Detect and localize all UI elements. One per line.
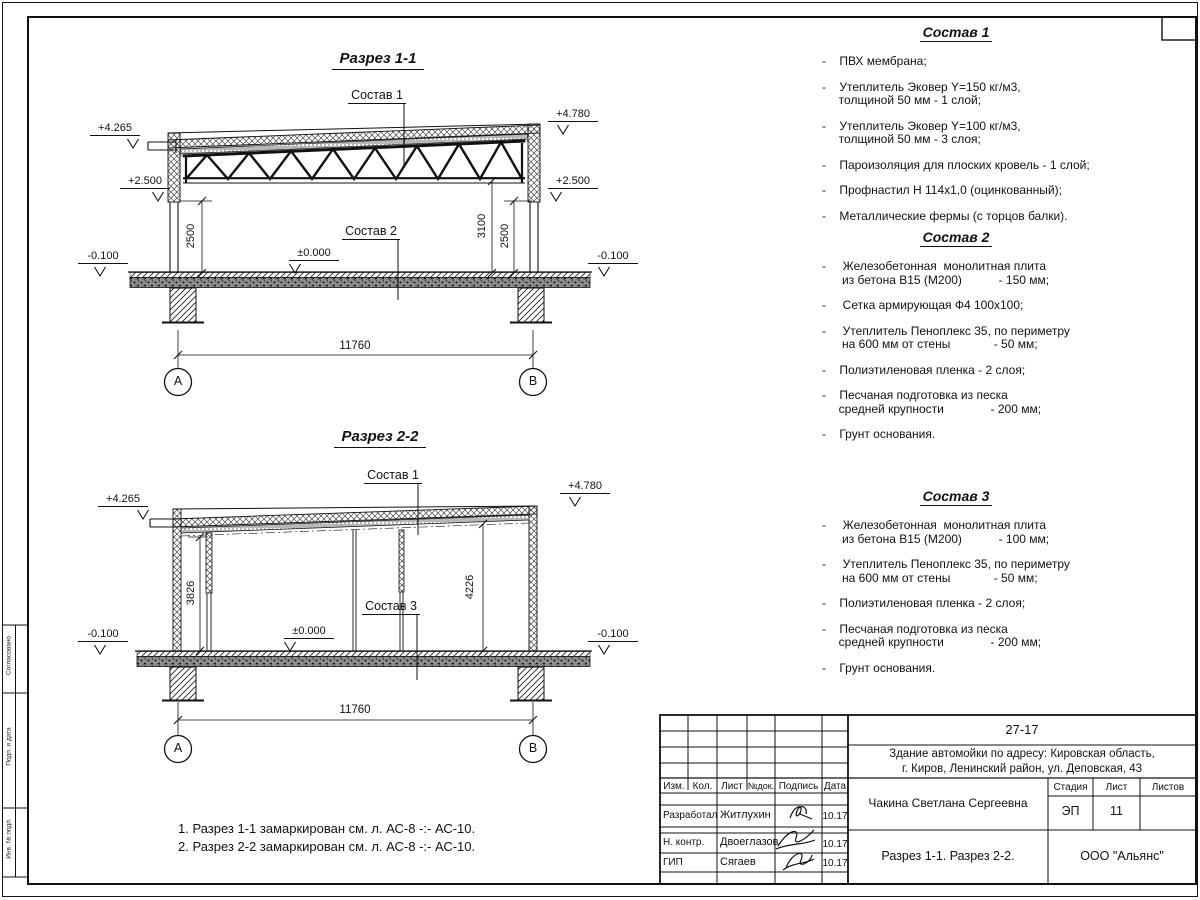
composition-list-1: Состав 1 - ПВХ мембрана; - Утеплитель Эк… (822, 24, 1162, 235)
composition-item: - Железобетонная монолитная плита из бет… (822, 260, 1162, 287)
dimension-label: 11760 (315, 704, 395, 716)
elevation-mark: +4.780 (548, 108, 598, 122)
dimension-label: 2500 (499, 204, 511, 268)
composition-item: - Грунт основания. (822, 662, 1162, 676)
elevation-mark: +2.500 (548, 175, 598, 189)
sheet-label: Лист (1093, 782, 1140, 793)
composition-item: - Полиэтиленовая пленка - 2 слоя; (822, 364, 1162, 378)
section1-callout-roof: Состав 1 (348, 88, 406, 104)
elevation-mark: +4.780 (560, 480, 610, 494)
composition-item: - Сетка армирующая Ф4 100х100; (822, 299, 1162, 313)
composition-3-title: Состав 3 (920, 488, 993, 506)
sign-date: 10.17 (822, 811, 848, 822)
axis-letter-a: А (169, 374, 187, 388)
section2-callout-floor: Состав 3 (362, 599, 420, 615)
composition-item: - Металлические фермы (с торцов балки). (822, 210, 1162, 224)
sheets-label: Листов (1140, 782, 1196, 793)
col-header-podpis: Подпись (775, 781, 822, 792)
project-description: Здание автомойки по адресу: Кировская об… (848, 747, 1196, 776)
composition-list-2: Состав 2 - Железобетонная монолитная пли… (822, 229, 1162, 454)
person-name: Житлухин (720, 809, 771, 821)
elevation-mark: -0.100 (78, 250, 128, 264)
stage-label: Стадия (1048, 782, 1093, 793)
role-label: Н. контр. (663, 837, 704, 848)
elevation-mark: +4.265 (98, 493, 148, 507)
composition-item: - Утеплитель Пеноплекс 35, по периметру … (822, 325, 1162, 352)
elevation-mark: ±0.000 (289, 247, 339, 261)
composition-item: - Полиэтиленовая пленка - 2 слоя; (822, 597, 1162, 611)
role-label: ГИП (663, 857, 683, 868)
composition-item: - ПВХ мембрана; (822, 55, 1162, 69)
composition-item: - Профнастил Н 114х1,0 (оцинкованный); (822, 184, 1162, 198)
composition-list-3: Состав 3 - Железобетонная монолитная пли… (822, 488, 1162, 687)
elevation-mark: -0.100 (588, 250, 638, 264)
composition-item: - Песчаная подготовка из песка средней к… (822, 389, 1162, 416)
elevation-mark: -0.100 (78, 628, 128, 642)
composition-1-title: Состав 1 (920, 24, 993, 42)
composition-item: - Утеплитель Эковер Y=100 кг/м3, толщино… (822, 120, 1162, 147)
section-2-title: Разрез 2-2 (334, 428, 426, 448)
dimension-label: 3826 (185, 561, 197, 625)
elevation-mark: +2.500 (120, 175, 170, 189)
col-header-data: Дата (822, 781, 848, 792)
composition-item: - Железобетонная монолитная плита из бет… (822, 519, 1162, 546)
col-header-izm: Изм. (660, 781, 688, 792)
composition-item: - Песчаная подготовка из песка средней к… (822, 623, 1162, 650)
margin-label: Подп. и дата (6, 707, 13, 787)
sign-date: 10.17 (822, 839, 848, 850)
author-name: Чакина Светлана Сергеевна (848, 796, 1048, 810)
composition-2-title: Состав 2 (920, 229, 993, 247)
dimension-label: 4226 (464, 555, 476, 619)
elevation-mark: -0.100 (588, 628, 638, 642)
person-name: Сягаев (720, 856, 756, 868)
stage-value: ЭП (1048, 804, 1093, 818)
composition-item: - Утеплитель Эковер Y=150 кг/м3, толщино… (822, 81, 1162, 108)
company-name: ООО "Альянс" (1048, 849, 1196, 863)
section1-callout-floor: Состав 2 (342, 224, 400, 240)
composition-item: - Пароизоляция для плоских кровель - 1 с… (822, 159, 1162, 173)
sign-date: 10.17 (822, 858, 848, 869)
section2-callout-roof: Состав 1 (364, 468, 422, 484)
section-2-2-drawing (95, 484, 610, 763)
dimension-label: 11760 (315, 340, 395, 352)
dimension-label: 2500 (185, 204, 197, 268)
margin-label: Согласовано (6, 616, 13, 696)
elevation-mark: +4.265 (90, 122, 140, 136)
drawing-sheet: Разрез 1-1 Состав 1 Состав 2 +4.265 +4.7… (0, 0, 1200, 900)
axis-letter-a: А (169, 741, 187, 755)
sheet-number: 11 (1093, 804, 1140, 818)
col-header-kol: Кол. (688, 781, 717, 792)
col-header-ndok: №док. (747, 781, 775, 791)
margin-label: Инв. № подл. (6, 799, 13, 879)
composition-item: - Утеплитель Пеноплекс 35, по периметру … (822, 558, 1162, 585)
dimension-label: 3100 (476, 194, 488, 258)
doc-number: 27-17 (848, 722, 1196, 737)
col-header-list: Лист (717, 781, 747, 792)
signature-strokes (776, 807, 815, 870)
section-1-title: Разрез 1-1 (332, 50, 424, 70)
drawing-notes: 1. Разрез 1-1 замаркирован см. л. АС-8 -… (178, 820, 475, 856)
role-label: Разработал (663, 810, 717, 821)
axis-letter-b: В (524, 741, 542, 755)
composition-item: - Грунт основания. (822, 428, 1162, 442)
sheet-title: Разрез 1-1. Разрез 2-2. (848, 849, 1048, 863)
axis-letter-b: В (524, 374, 542, 388)
elevation-mark: ±0.000 (284, 625, 334, 639)
person-name: Двоеглазов (720, 836, 778, 848)
